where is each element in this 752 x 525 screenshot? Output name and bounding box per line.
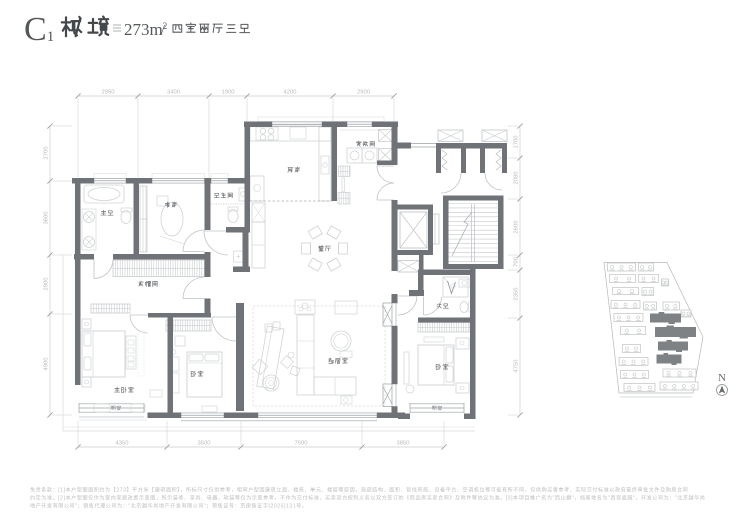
svg-text:2950: 2950 (102, 90, 115, 96)
svg-text:2600: 2600 (514, 221, 520, 234)
svg-text:700: 700 (514, 257, 520, 267)
svg-text:/: / (161, 23, 165, 38)
svg-text:2080: 2080 (514, 172, 520, 185)
svg-text:2700: 2700 (44, 147, 50, 160)
svg-text:3600: 3600 (44, 212, 50, 225)
svg-text:免责条款：[1]本户型图面积约为【273】平方米【建筑面积】: 免责条款：[1]本户型图面积约为【273】平方米【建筑面积】，所标尺寸仅供参考，… (30, 487, 688, 494)
svg-text:1900: 1900 (222, 90, 235, 96)
svg-text:2900: 2900 (44, 278, 50, 291)
svg-text:2350: 2350 (514, 288, 520, 301)
svg-text:2900: 2900 (357, 90, 370, 96)
svg-text:地产开发有限公司"；销售代理公司为："北京越华尚地产开发有限: 地产开发有限公司"；销售代理公司为："北京越华尚地产开发有限公司"；预售证号：京… (30, 503, 307, 510)
svg-text:3400: 3400 (167, 90, 180, 96)
svg-text:4900: 4900 (44, 358, 50, 371)
svg-text:3500: 3500 (198, 441, 211, 447)
svg-text:7500: 7500 (295, 441, 308, 447)
svg-text:约定为准。[2]本户型图仅作为室内家居改置示意图，所示装修、: 约定为准。[2]本户型图仅作为室内家居改置示意图，所示装修、家具、电器、软装等仅… (30, 495, 705, 502)
svg-text:4750: 4750 (514, 360, 520, 373)
svg-text:4200: 4200 (284, 90, 297, 96)
svg-text:1700: 1700 (514, 136, 520, 149)
svg-text:4350: 4350 (116, 441, 129, 447)
svg-text:N: N (718, 372, 726, 384)
svg-text:3850: 3850 (397, 441, 410, 447)
